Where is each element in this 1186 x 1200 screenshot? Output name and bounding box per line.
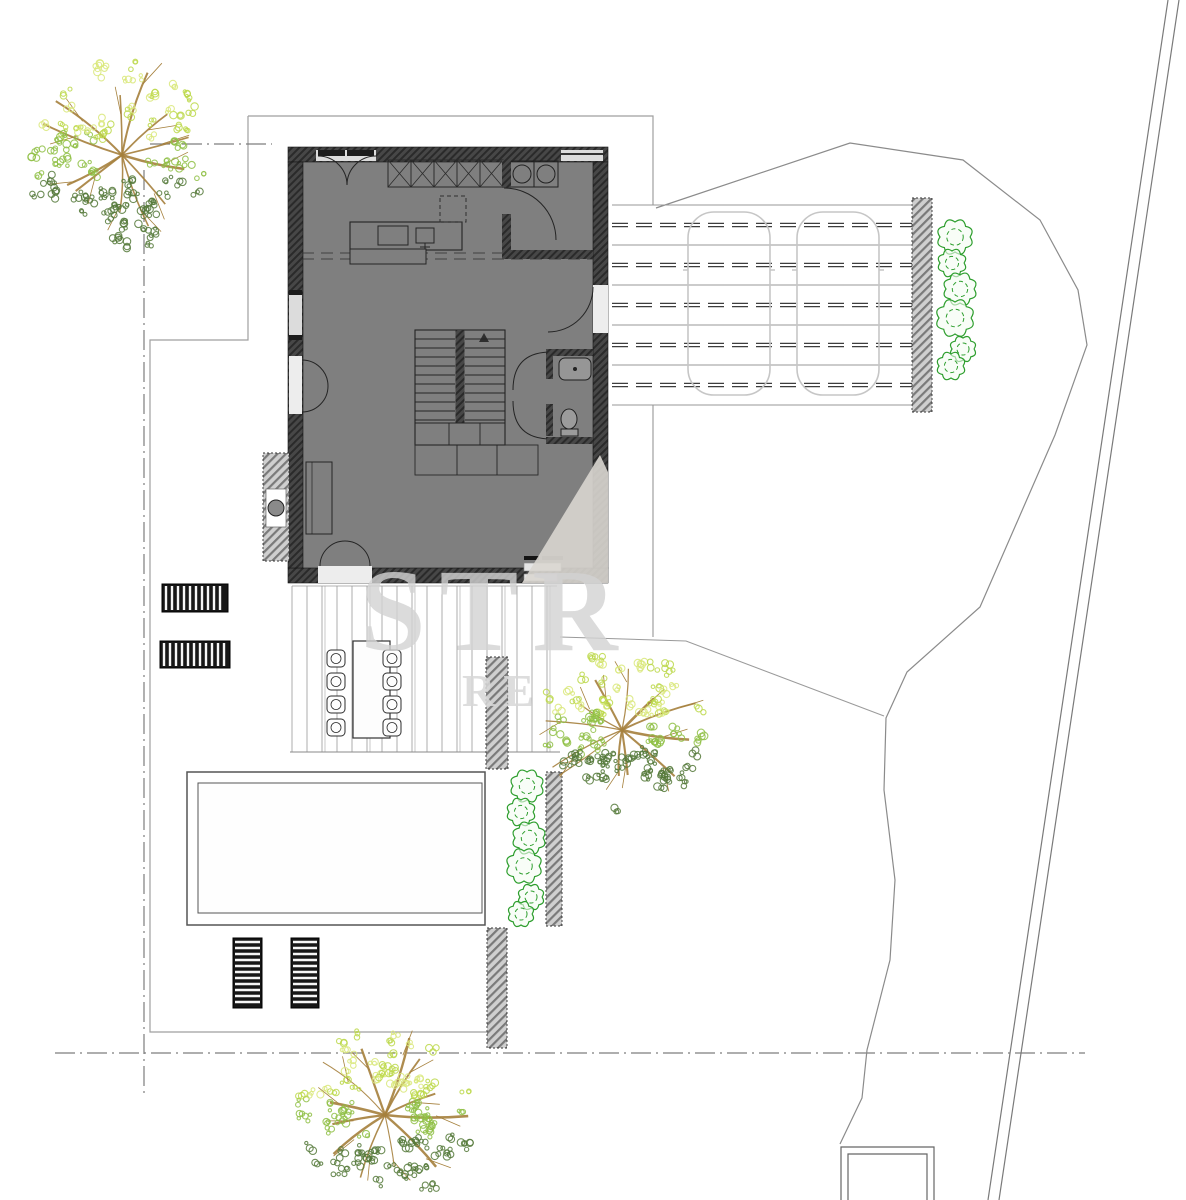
tree-foliage: [305, 1141, 308, 1144]
tree-foliage: [38, 191, 44, 197]
tree-foliage: [338, 1165, 344, 1171]
tree-foliage: [549, 729, 556, 736]
tree-foliage: [565, 686, 572, 693]
tree-foliage: [122, 179, 125, 182]
toilet-bowl: [561, 409, 577, 429]
dining-chair: [327, 696, 345, 713]
tree-foliage: [350, 1100, 354, 1104]
tree-foliage: [165, 110, 168, 113]
tree-foliage: [170, 111, 177, 118]
tree-foliage: [28, 153, 35, 160]
tree-foliage: [426, 1044, 433, 1051]
dining-chair: [383, 696, 401, 713]
tree-foliage: [41, 180, 47, 186]
tree-foliage: [582, 719, 586, 723]
tree-branch: [120, 155, 123, 212]
tree-foliage: [140, 78, 144, 82]
toilet-tank: [561, 429, 578, 436]
tree-foliage: [39, 146, 45, 152]
window-north: [561, 150, 603, 161]
tree-foliage: [543, 743, 546, 746]
tree-center: [540, 653, 708, 814]
tree-foliage: [308, 1113, 311, 1116]
tree-foliage: [614, 759, 617, 762]
tree-foliage: [467, 1140, 473, 1146]
driveway-parking: [612, 198, 932, 412]
tree-foliage: [165, 191, 169, 195]
tree-foliage: [578, 676, 585, 683]
tree-foliage: [557, 731, 564, 738]
tree-foliage: [306, 1119, 310, 1123]
tree-foliage: [91, 200, 98, 207]
site-plan-canvas: STR RE: [0, 0, 1186, 1200]
tree-foliage: [448, 1136, 454, 1142]
tree-twig: [143, 63, 162, 84]
tree-foliage: [99, 187, 102, 190]
tree-foliage: [296, 1102, 301, 1107]
tree-foliage: [652, 701, 655, 704]
tree-foliage: [108, 121, 114, 127]
tree-branch: [120, 95, 122, 155]
tree-foliage: [647, 664, 654, 671]
tree-foliage: [342, 1172, 347, 1177]
window-north-frame: [561, 153, 603, 155]
tree-foliage: [412, 1173, 417, 1178]
bush-outline: [511, 770, 543, 802]
tree-foliage: [601, 764, 605, 768]
tree-foliage: [328, 1109, 331, 1112]
partition-stub-top: [502, 160, 511, 188]
partition-horizontal: [502, 250, 593, 259]
tree-foliage: [591, 728, 596, 733]
tree-foliage: [428, 1135, 432, 1139]
tree-foliage: [555, 714, 561, 720]
tree-foliage: [430, 1049, 436, 1055]
tree-foliage: [154, 227, 157, 230]
bush: [507, 798, 534, 825]
tree-foliage: [178, 113, 183, 118]
tree-foliage: [88, 160, 91, 163]
tree-foliage: [690, 765, 696, 771]
stairs-stringer: [456, 330, 465, 423]
tree-foliage: [426, 1107, 429, 1110]
tree-foliage: [353, 1085, 357, 1089]
tree-foliage: [428, 1188, 432, 1192]
tree-foliage: [606, 765, 609, 768]
bush-outline: [937, 300, 973, 336]
tree-foliage: [674, 683, 678, 687]
tree-foliage: [650, 713, 653, 716]
tree-foliage: [464, 1147, 468, 1151]
tree-foliage: [373, 1176, 379, 1182]
tree-branch: [330, 1102, 385, 1115]
tree-foliage: [195, 176, 200, 181]
tree-foliage: [83, 212, 87, 216]
tree-foliage: [68, 87, 72, 91]
dining-chair: [327, 719, 345, 736]
tree-foliage: [33, 155, 40, 162]
fireplace-flue: [268, 500, 284, 516]
tree-foliage: [99, 114, 106, 121]
tree-foliage: [379, 1185, 382, 1188]
tree-foliage: [86, 130, 89, 133]
tree-foliage: [127, 184, 131, 188]
tree-foliage: [331, 1172, 336, 1177]
pool-water: [198, 783, 482, 913]
tree-foliage: [183, 156, 189, 162]
tree-foliage: [151, 227, 159, 235]
tree-foliage: [653, 762, 656, 765]
tree-foliage: [368, 1061, 372, 1065]
door-leaf-left: [318, 150, 345, 156]
site-plan-drawing: STR RE: [0, 0, 1186, 1200]
tree-foliage: [400, 1086, 406, 1092]
tree-foliage: [615, 769, 618, 772]
tree-northwest: [28, 59, 206, 252]
opening-west-door: [289, 356, 302, 414]
tree-twig: [351, 1052, 370, 1071]
window-west-sill-bottom: [289, 335, 302, 340]
tree-foliage: [601, 770, 604, 773]
tree-branch: [622, 669, 628, 730]
tree-foliage: [351, 1111, 354, 1114]
tree-foliage: [129, 67, 134, 72]
tree-foliage: [460, 1090, 464, 1094]
tree-foliage: [147, 213, 151, 217]
tree-twig: [334, 1140, 355, 1157]
tree-foliage: [357, 1135, 360, 1138]
neighbor-structure: [841, 1147, 934, 1200]
opening-east-entry: [593, 285, 608, 333]
house: [263, 147, 608, 583]
tree-foliage: [175, 145, 180, 150]
tree-branch: [385, 1115, 436, 1167]
tree-foliage: [191, 103, 198, 110]
tree-foliage: [66, 164, 70, 168]
tree-foliage: [451, 1133, 455, 1137]
terrain-contour-line: [656, 143, 1087, 1144]
tree-foliage: [345, 1166, 349, 1170]
tree-foliage: [182, 163, 187, 168]
tree-foliage: [153, 211, 159, 217]
tree-foliage: [543, 689, 549, 695]
tree-foliage: [139, 74, 142, 77]
dining-chair: [327, 673, 345, 690]
tree-foliage: [99, 122, 103, 126]
parking-retaining-wall: [912, 198, 932, 412]
tree-foliage: [655, 668, 660, 673]
tree-foliage: [99, 197, 102, 200]
tree-foliage: [425, 1146, 429, 1150]
garden-wall-lower: [487, 928, 507, 1048]
tree-foliage: [36, 175, 39, 178]
watermark-text-secondary: RE: [462, 665, 542, 716]
wc-wall-stub: [546, 404, 553, 436]
tree-foliage: [169, 175, 172, 178]
window-west: [289, 290, 302, 340]
tree-foliage: [135, 220, 142, 227]
tree-foliage: [651, 685, 655, 689]
tree-twig: [680, 700, 703, 707]
tree-foliage: [422, 1182, 428, 1188]
tree-foliage: [416, 1130, 419, 1133]
dining-chair: [383, 719, 401, 736]
tree-foliage: [142, 228, 146, 232]
tree-foliage: [168, 106, 174, 112]
tree-foliage: [48, 181, 51, 184]
sideboard: [350, 249, 426, 264]
sink-drain: [573, 367, 577, 371]
tree-foliage: [146, 206, 153, 213]
tree-foliage: [125, 203, 128, 206]
tree-foliage: [420, 1187, 424, 1191]
tree-foliage: [336, 1155, 343, 1162]
tree-foliage: [52, 195, 59, 202]
tree-foliage: [419, 1084, 423, 1088]
bush-outline: [507, 798, 534, 825]
tree-foliage: [185, 94, 188, 97]
tree-foliage: [297, 1117, 300, 1120]
tree-foliage: [358, 1144, 362, 1148]
door-leaf-right: [347, 150, 374, 156]
tree-foliage: [78, 160, 85, 167]
tree-foliage: [188, 161, 195, 168]
road-edge-lines: [988, 0, 1179, 1200]
tree-foliage: [680, 771, 684, 775]
tree-foliage: [337, 1172, 340, 1175]
tree-foliage: [654, 783, 661, 790]
bush: [937, 300, 973, 336]
tree-foliage: [357, 1087, 361, 1091]
tree-foliage: [568, 764, 572, 768]
tree-foliage: [148, 123, 152, 127]
tree-foliage: [157, 191, 162, 196]
tree-foliage: [595, 754, 600, 759]
tree-foliage: [426, 1079, 430, 1083]
tree-foliage: [79, 190, 83, 194]
tree-foliage: [317, 1091, 324, 1098]
tree-foliage: [345, 1112, 351, 1118]
wc-wall-bottom: [546, 437, 593, 444]
tree-foliage: [602, 676, 607, 681]
tree-branch: [122, 155, 184, 169]
bush: [511, 770, 543, 802]
tree-foliage: [110, 196, 114, 200]
tree-foliage: [191, 192, 196, 197]
bath-wall-stub: [546, 349, 553, 379]
window-west-sill-top: [289, 290, 302, 295]
garden-wall-mid: [546, 772, 562, 926]
tree-foliage: [340, 1081, 343, 1084]
dining-chair: [327, 650, 345, 667]
bath-wall-top: [546, 349, 593, 356]
